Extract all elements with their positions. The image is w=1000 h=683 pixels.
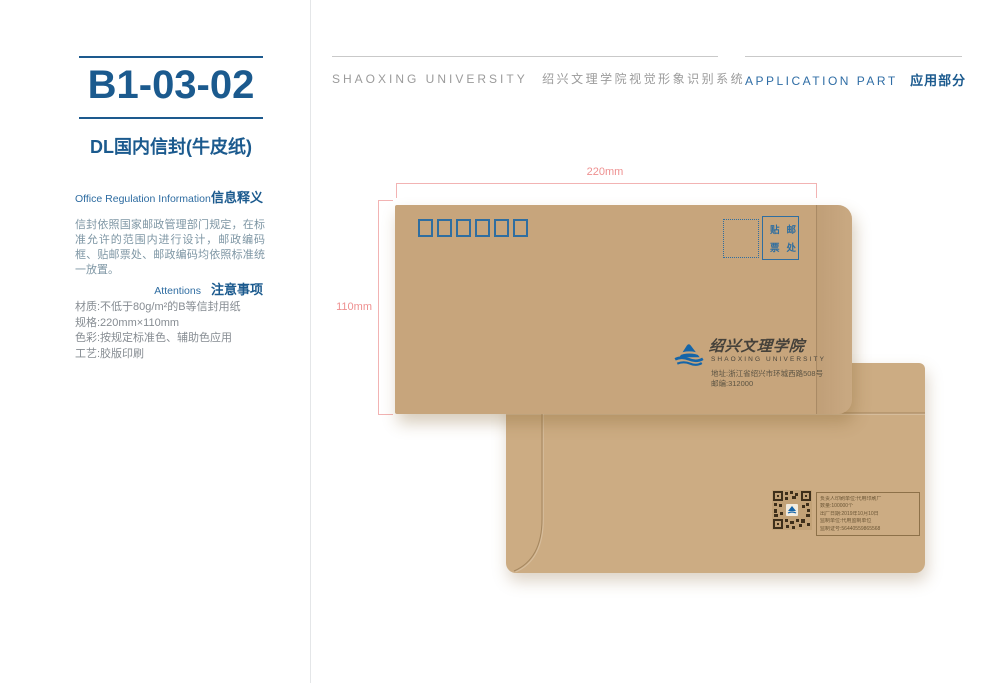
logo-calligraphy-text: 绍兴文理学院 [708,335,839,356]
section-heading-info: Office Regulation Information 信息释义 [75,187,263,206]
postal-code-box [494,219,509,237]
spec-color: 色彩:按规定标准色、辅助色应用 [75,331,275,347]
center-header-zh: 绍兴文理学院视觉形象识别系统 [542,72,745,86]
center-header-rule [332,56,718,57]
postal-code-box [418,219,433,237]
qr-code [772,490,812,530]
page-code: B1-03-02 [55,63,287,108]
height-dimension-label: 110mm [330,301,372,313]
postal-code-box [475,219,490,237]
sidebar-divider [310,0,311,683]
postal-code-box [437,219,452,237]
right-header-rule [745,56,962,57]
print-info-line: 数量:100000个 [820,503,916,510]
print-info-line: 监制单位:代用监制单位 [820,518,916,525]
envelope-side-flap [816,205,852,414]
vi-manual-page: B1-03-02 DL国内信封(牛皮纸) Office Regulation I… [0,0,1000,683]
print-info-line: 监制证号:56440559865568 [820,526,916,533]
code-rule-top [79,56,263,58]
spec-list: 材质:不低于80g/m²的B等信封用纸 规格:220mm×110mm 色彩:按规… [75,300,275,362]
height-dimension-line [378,200,393,415]
stamp-text-line2: 票处 [763,240,798,254]
envelope-front-mockup: 贴邮 票处 绍兴文理学院 SHAOXING UNIVERSITY 地址:浙江省绍… [395,205,852,414]
section1-zh: 信息释义 [211,187,263,206]
right-header-en: APPLICATION PART [745,74,898,88]
print-info-line: 出厂日期:2019年10月10日 [820,511,916,518]
width-dimension-line [396,183,817,198]
right-header-zh: 应用部分 [910,73,966,88]
section2-zh: 注意事项 [211,279,263,298]
spec-process: 工艺:胶版印刷 [75,347,275,363]
center-header: SHAOXING UNIVERSITY 绍兴文理学院视觉形象识别系统 [332,70,732,88]
print-info-line: 负责人印刷单位:代用印刷厂 [820,496,916,503]
postal-code-boxes [418,219,528,237]
postcode-line: 邮编:312000 [711,378,753,389]
spec-material: 材质:不低于80g/m²的B等信封用纸 [75,300,275,316]
stamp-text-line1: 贴邮 [763,222,798,236]
university-logo-icon [673,341,705,367]
code-rule-bottom [79,117,263,119]
postal-code-box [456,219,471,237]
stamp-area-box: 贴邮 票处 [762,216,799,260]
width-dimension-label: 220mm [575,166,635,178]
spec-size: 规格:220mm×110mm [75,316,275,332]
printing-info-box: 负责人印刷单位:代用印刷厂 数量:100000个 出厂日期:2019年10月10… [816,492,920,536]
logo-english-text: SHAOXING UNIVERSITY [711,356,826,363]
right-header: APPLICATION PART 应用部分 [745,70,975,90]
center-header-en: SHAOXING UNIVERSITY [332,72,528,86]
section1-en: Office Regulation Information [75,193,211,205]
page-title: DL国内信封(牛皮纸) [55,133,287,159]
regulation-paragraph: 信封依照国家邮政管理部门规定，在标准允许的范围内进行设计，邮政编码框、贴邮票处、… [75,218,265,278]
stamp-dotted-box [723,219,759,258]
section2-en: Attentions [154,285,201,297]
section-heading-attentions: Attentions 注意事项 [75,279,263,298]
postal-code-box [513,219,528,237]
